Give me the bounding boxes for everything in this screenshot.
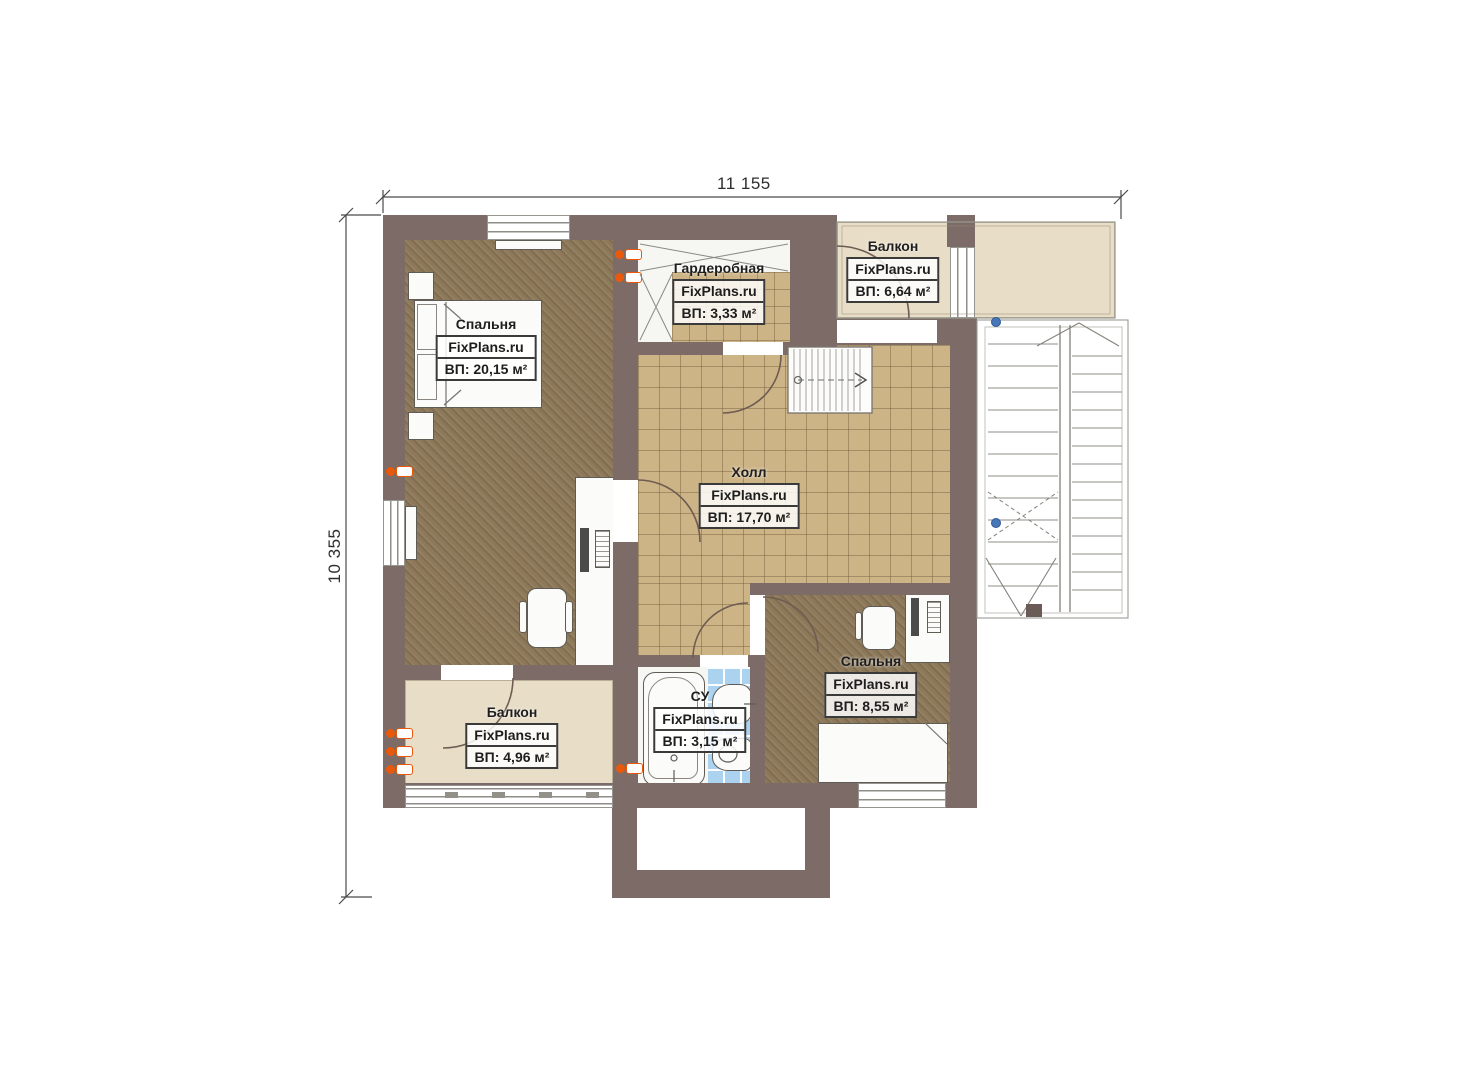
lower-roof-opening <box>637 808 805 870</box>
room-area: ВП: 3,15 м² <box>655 729 744 751</box>
room-name: Гардеробная <box>672 260 765 276</box>
wall-top <box>383 215 837 240</box>
radiator-icon <box>386 466 413 477</box>
wall-balcony-pillar <box>947 215 975 247</box>
room-area: ВП: 4,96 м² <box>467 745 556 767</box>
watermark: FixPlans.ru <box>467 725 556 745</box>
chair-icon <box>527 588 567 648</box>
pillow-icon <box>417 354 437 400</box>
watermark: FixPlans.ru <box>701 485 798 505</box>
pillow-icon <box>417 304 437 350</box>
wall-bedroom1-bottom <box>405 665 638 680</box>
room-name: Балкон <box>465 704 558 720</box>
room-info-box: FixPlans.ru ВП: 17,70 м² <box>699 483 800 529</box>
balcony-glazing <box>950 247 975 318</box>
room-info-box: FixPlans.ru ВП: 3,15 м² <box>653 707 746 753</box>
window-sill <box>495 240 562 250</box>
radiator-icon <box>615 249 642 260</box>
marker-dot <box>992 519 1001 528</box>
room-area: ВП: 20,15 м² <box>438 357 535 379</box>
external-stairs-icon <box>977 318 1128 619</box>
marker-dot <box>992 318 1001 327</box>
door-opening-wardrobe <box>723 342 783 355</box>
dimension-width-label: 11 155 <box>717 174 771 194</box>
door-opening-bedroom2 <box>750 595 765 655</box>
room-label-balcony-bottom: Балкон FixPlans.ru ВП: 4,96 м² <box>465 704 558 769</box>
keyboard-icon <box>927 601 941 633</box>
watermark: FixPlans.ru <box>826 674 915 694</box>
room-label-wardrobe: Гардеробная FixPlans.ru ВП: 3,33 м² <box>672 260 765 325</box>
room-name: Холл <box>699 464 800 480</box>
wall-bedroom2-top <box>750 583 950 595</box>
radiator-icon <box>386 764 413 775</box>
window-sill <box>405 506 417 560</box>
room-area: ВП: 8,55 м² <box>826 694 915 716</box>
radiator-icon <box>386 746 413 757</box>
floor-plan-canvas: Спальня FixPlans.ru ВП: 20,15 м² Гардеро… <box>0 0 1474 1080</box>
radiator-icon <box>615 272 642 283</box>
watermark: FixPlans.ru <box>848 259 937 279</box>
room-label-bedroom1: Спальня FixPlans.ru ВП: 20,15 м² <box>436 316 537 381</box>
dimension-height-label: 10 355 <box>325 521 345 591</box>
monitor-icon <box>580 528 589 572</box>
room-label-balcony-top: Балкон FixPlans.ru ВП: 6,64 м² <box>846 238 939 303</box>
room-info-box: FixPlans.ru ВП: 6,64 м² <box>846 257 939 303</box>
chair-armrest-icon <box>855 612 862 640</box>
door-opening-bathroom <box>700 655 748 667</box>
radiator-icon <box>386 728 413 739</box>
room-area: ВП: 6,64 м² <box>848 279 937 301</box>
room-label-bedroom2: Спальня FixPlans.ru ВП: 8,55 м² <box>824 653 917 718</box>
room-name: Спальня <box>824 653 917 669</box>
balcony-railing <box>405 785 613 808</box>
watermark: FixPlans.ru <box>438 337 535 357</box>
door-opening-balcony-top <box>837 320 937 343</box>
gable-outline <box>1037 323 1119 346</box>
chair-armrest-icon <box>565 601 573 633</box>
room-area: ВП: 17,70 м² <box>701 505 798 527</box>
wall-right <box>950 345 977 783</box>
room-info-box: FixPlans.ru ВП: 4,96 м² <box>465 723 558 769</box>
monitor-icon <box>911 598 919 636</box>
room-label-bathroom: СУ FixPlans.ru ВП: 3,15 м² <box>653 688 746 753</box>
chair-icon <box>862 606 896 650</box>
room-info-box: FixPlans.ru ВП: 20,15 м² <box>436 335 537 381</box>
door-opening-bedroom1 <box>613 480 638 542</box>
stair-post <box>1026 604 1042 617</box>
room-info-box: FixPlans.ru ВП: 8,55 м² <box>824 672 917 718</box>
room-label-hall: Холл FixPlans.ru ВП: 17,70 м² <box>699 464 800 529</box>
room-name: Балкон <box>846 238 939 254</box>
room-name: Спальня <box>436 316 537 332</box>
window-top <box>487 215 570 240</box>
keyboard-icon <box>595 530 610 568</box>
wall-bedroom1-right <box>613 240 638 665</box>
wall-porch-bottom <box>612 870 830 898</box>
watermark: FixPlans.ru <box>674 281 763 301</box>
nightstand-icon <box>408 272 434 300</box>
single-bed-icon <box>818 723 948 783</box>
door-opening-balcony-bottom <box>441 665 513 680</box>
window-left <box>383 500 405 566</box>
window-bottom <box>858 783 946 808</box>
room-area: ВП: 3,33 м² <box>674 301 763 323</box>
room-info-box: FixPlans.ru ВП: 3,33 м² <box>672 279 765 325</box>
chair-armrest-icon <box>519 601 527 633</box>
watermark: FixPlans.ru <box>655 709 744 729</box>
room-name: СУ <box>653 688 746 704</box>
radiator-icon <box>616 763 643 774</box>
nightstand-icon <box>408 412 434 440</box>
